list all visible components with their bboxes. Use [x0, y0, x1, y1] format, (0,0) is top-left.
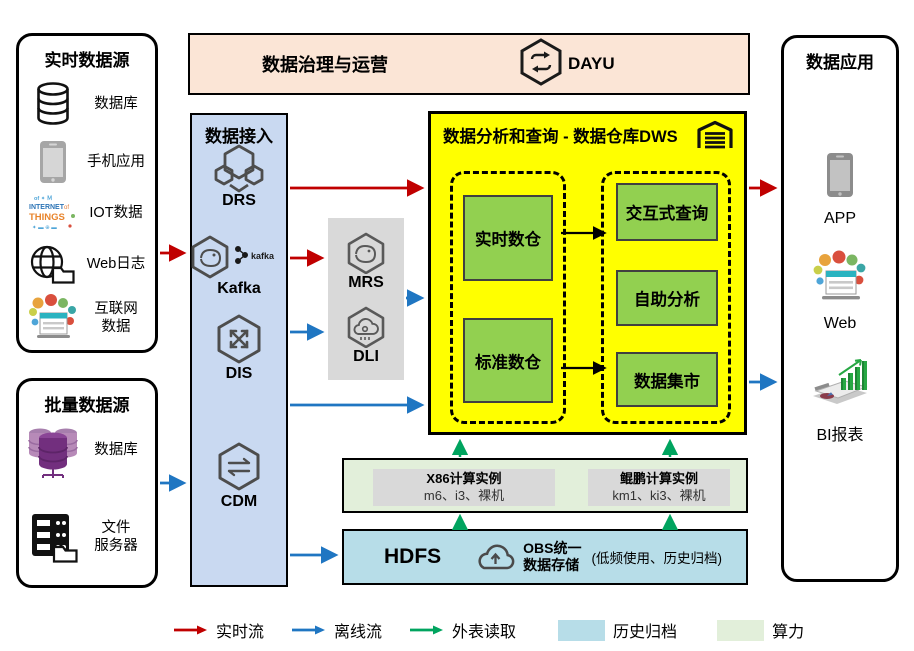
compute-bar: X86计算实例 m6、i3、裸机 鲲鹏计算实例 km1、ki3、裸机 — [342, 458, 748, 513]
internet-bubbles-icon — [25, 294, 81, 342]
cdm-label: CDM — [192, 493, 286, 511]
app-label: Web — [824, 315, 857, 333]
list-item: Web日志 — [25, 239, 151, 289]
drs-icon — [192, 143, 286, 193]
legend-offline: 离线流 — [290, 618, 382, 642]
data-access-panel: 数据接入 DRS kafka Kafka — [190, 113, 288, 587]
list-item: BI报表 — [784, 358, 896, 445]
storage-note: (低频使用、历史归档) — [592, 547, 723, 567]
legend-external: 外表读取 — [408, 618, 516, 642]
processing-panel: MRS DLI — [328, 218, 404, 380]
dis-icon — [192, 313, 286, 365]
hdfs-label: HDFS — [384, 545, 441, 569]
mrs-label: MRS — [328, 274, 404, 292]
kafka-icon: kafka — [184, 235, 286, 279]
web-icon — [812, 250, 868, 309]
standard-warehouse-box: 标准数仓 — [463, 318, 553, 403]
list-item: 互联网 数据 — [25, 289, 151, 347]
obs-label: OBS统一 数据存储 — [523, 540, 581, 574]
kunpeng-name: 鲲鹏计算实例 — [620, 471, 698, 487]
compute-swatch — [717, 620, 764, 641]
legend-archive: 历史归档 — [558, 618, 677, 642]
app-label: BI报表 — [816, 421, 863, 445]
realtime-warehouse-box: 实时数仓 — [463, 195, 553, 281]
kafka-label: Kafka — [192, 280, 286, 298]
governance-title: 数据治理与运营 — [262, 51, 388, 77]
bi-report-icon — [811, 358, 869, 415]
batch-sources-panel: 批量数据源 数据库 — [16, 378, 158, 588]
source-label: 互联网 数据 — [81, 300, 151, 336]
list-item: APP — [784, 151, 896, 228]
drs-label: DRS — [192, 192, 286, 210]
dis-label: DIS — [192, 365, 286, 383]
cdm-icon — [192, 442, 286, 492]
self-service-analysis-box: 自助分析 — [616, 270, 718, 326]
dayu-hexagon-icon — [518, 37, 564, 92]
globe-folder-icon — [25, 243, 81, 285]
list-item: of ✦ Ｍ INTERNET of THINGS ✦ ▬ ⊕ ▬ IOT数据 — [25, 188, 151, 238]
list-item: Web — [784, 250, 896, 333]
architecture-diagram: 实时数据源 数据库 手机应用 — [0, 0, 914, 651]
realtime-sources-title: 实时数据源 — [19, 46, 155, 71]
dli-icon — [328, 306, 404, 348]
legend-realtime: 实时流 — [172, 618, 264, 642]
svg-text:INTERNET: INTERNET — [29, 204, 65, 211]
x86-spec: m6、i3、裸机 — [424, 488, 504, 504]
dws-title: 数据分析和查询 - 数据仓库DWS — [443, 123, 678, 147]
app-label: APP — [824, 210, 856, 228]
database-icon — [25, 81, 81, 127]
storage-bar: HDFS OBS统一 数据存储 (低频使用、历史归档) — [342, 529, 748, 585]
dayu-badge: DAYU — [518, 37, 615, 92]
svg-text:✦ ▬ ⊕ ▬: ✦ ▬ ⊕ ▬ — [32, 224, 57, 231]
file-server-icon — [25, 511, 81, 563]
cloud-upload-icon — [473, 538, 517, 577]
external-read-arrow-icon — [408, 624, 444, 636]
legend: 实时流 离线流 外表读取 历史归档 算力 — [0, 615, 914, 645]
list-item: 数据库 — [25, 418, 151, 482]
data-apps-title: 数据应用 — [784, 48, 896, 73]
iot-wordcloud-icon: of ✦ Ｍ INTERNET of THINGS ✦ ▬ ⊕ ▬ — [25, 192, 81, 234]
svg-text:kafka: kafka — [251, 251, 275, 261]
data-apps-panel: 数据应用 APP — [781, 35, 899, 582]
list-item: 数据库 — [25, 78, 151, 130]
source-label: IOT数据 — [81, 204, 151, 222]
list-item: 文件 服务器 — [25, 505, 151, 569]
source-label: 手机应用 — [81, 153, 151, 171]
legend-compute: 算力 — [717, 618, 804, 642]
offline-flow-arrow-icon — [290, 624, 326, 636]
source-label: Web日志 — [81, 255, 151, 273]
interactive-query-box: 交互式查询 — [616, 183, 718, 241]
app-phone-icon — [824, 151, 856, 204]
svg-text:of: of — [64, 205, 69, 211]
mrs-icon — [328, 232, 404, 274]
realtime-sources-panel: 实时数据源 数据库 手机应用 — [16, 33, 158, 353]
batch-sources-title: 批量数据源 — [19, 391, 155, 416]
kunpeng-spec: km1、ki3、裸机 — [612, 488, 705, 504]
x86-name: X86计算实例 — [426, 471, 501, 487]
warehouse-icon — [695, 119, 735, 155]
source-label: 文件 服务器 — [81, 519, 151, 555]
archive-swatch — [558, 620, 605, 641]
realtime-flow-arrow-icon — [172, 624, 208, 636]
svg-text:of ✦ Ｍ: of ✦ Ｍ — [34, 194, 52, 202]
list-item: 手机应用 — [25, 136, 151, 188]
dli-label: DLI — [328, 348, 404, 366]
data-mart-box: 数据集市 — [616, 352, 718, 407]
dws-panel: 数据分析和查询 - 数据仓库DWS 实时数仓 标准数仓 交互式查询 自助分析 数… — [428, 111, 747, 435]
purple-database-icon — [25, 421, 81, 479]
source-label: 数据库 — [81, 441, 151, 459]
kunpeng-compute-box: 鲲鹏计算实例 km1、ki3、裸机 — [588, 469, 730, 506]
svg-text:THINGS: THINGS — [29, 212, 65, 223]
source-label: 数据库 — [81, 95, 151, 113]
mobile-phone-icon — [25, 139, 81, 185]
governance-banner: 数据治理与运营 DAYU — [188, 33, 750, 95]
x86-compute-box: X86计算实例 m6、i3、裸机 — [373, 469, 555, 506]
dayu-label: DAYU — [568, 54, 615, 74]
